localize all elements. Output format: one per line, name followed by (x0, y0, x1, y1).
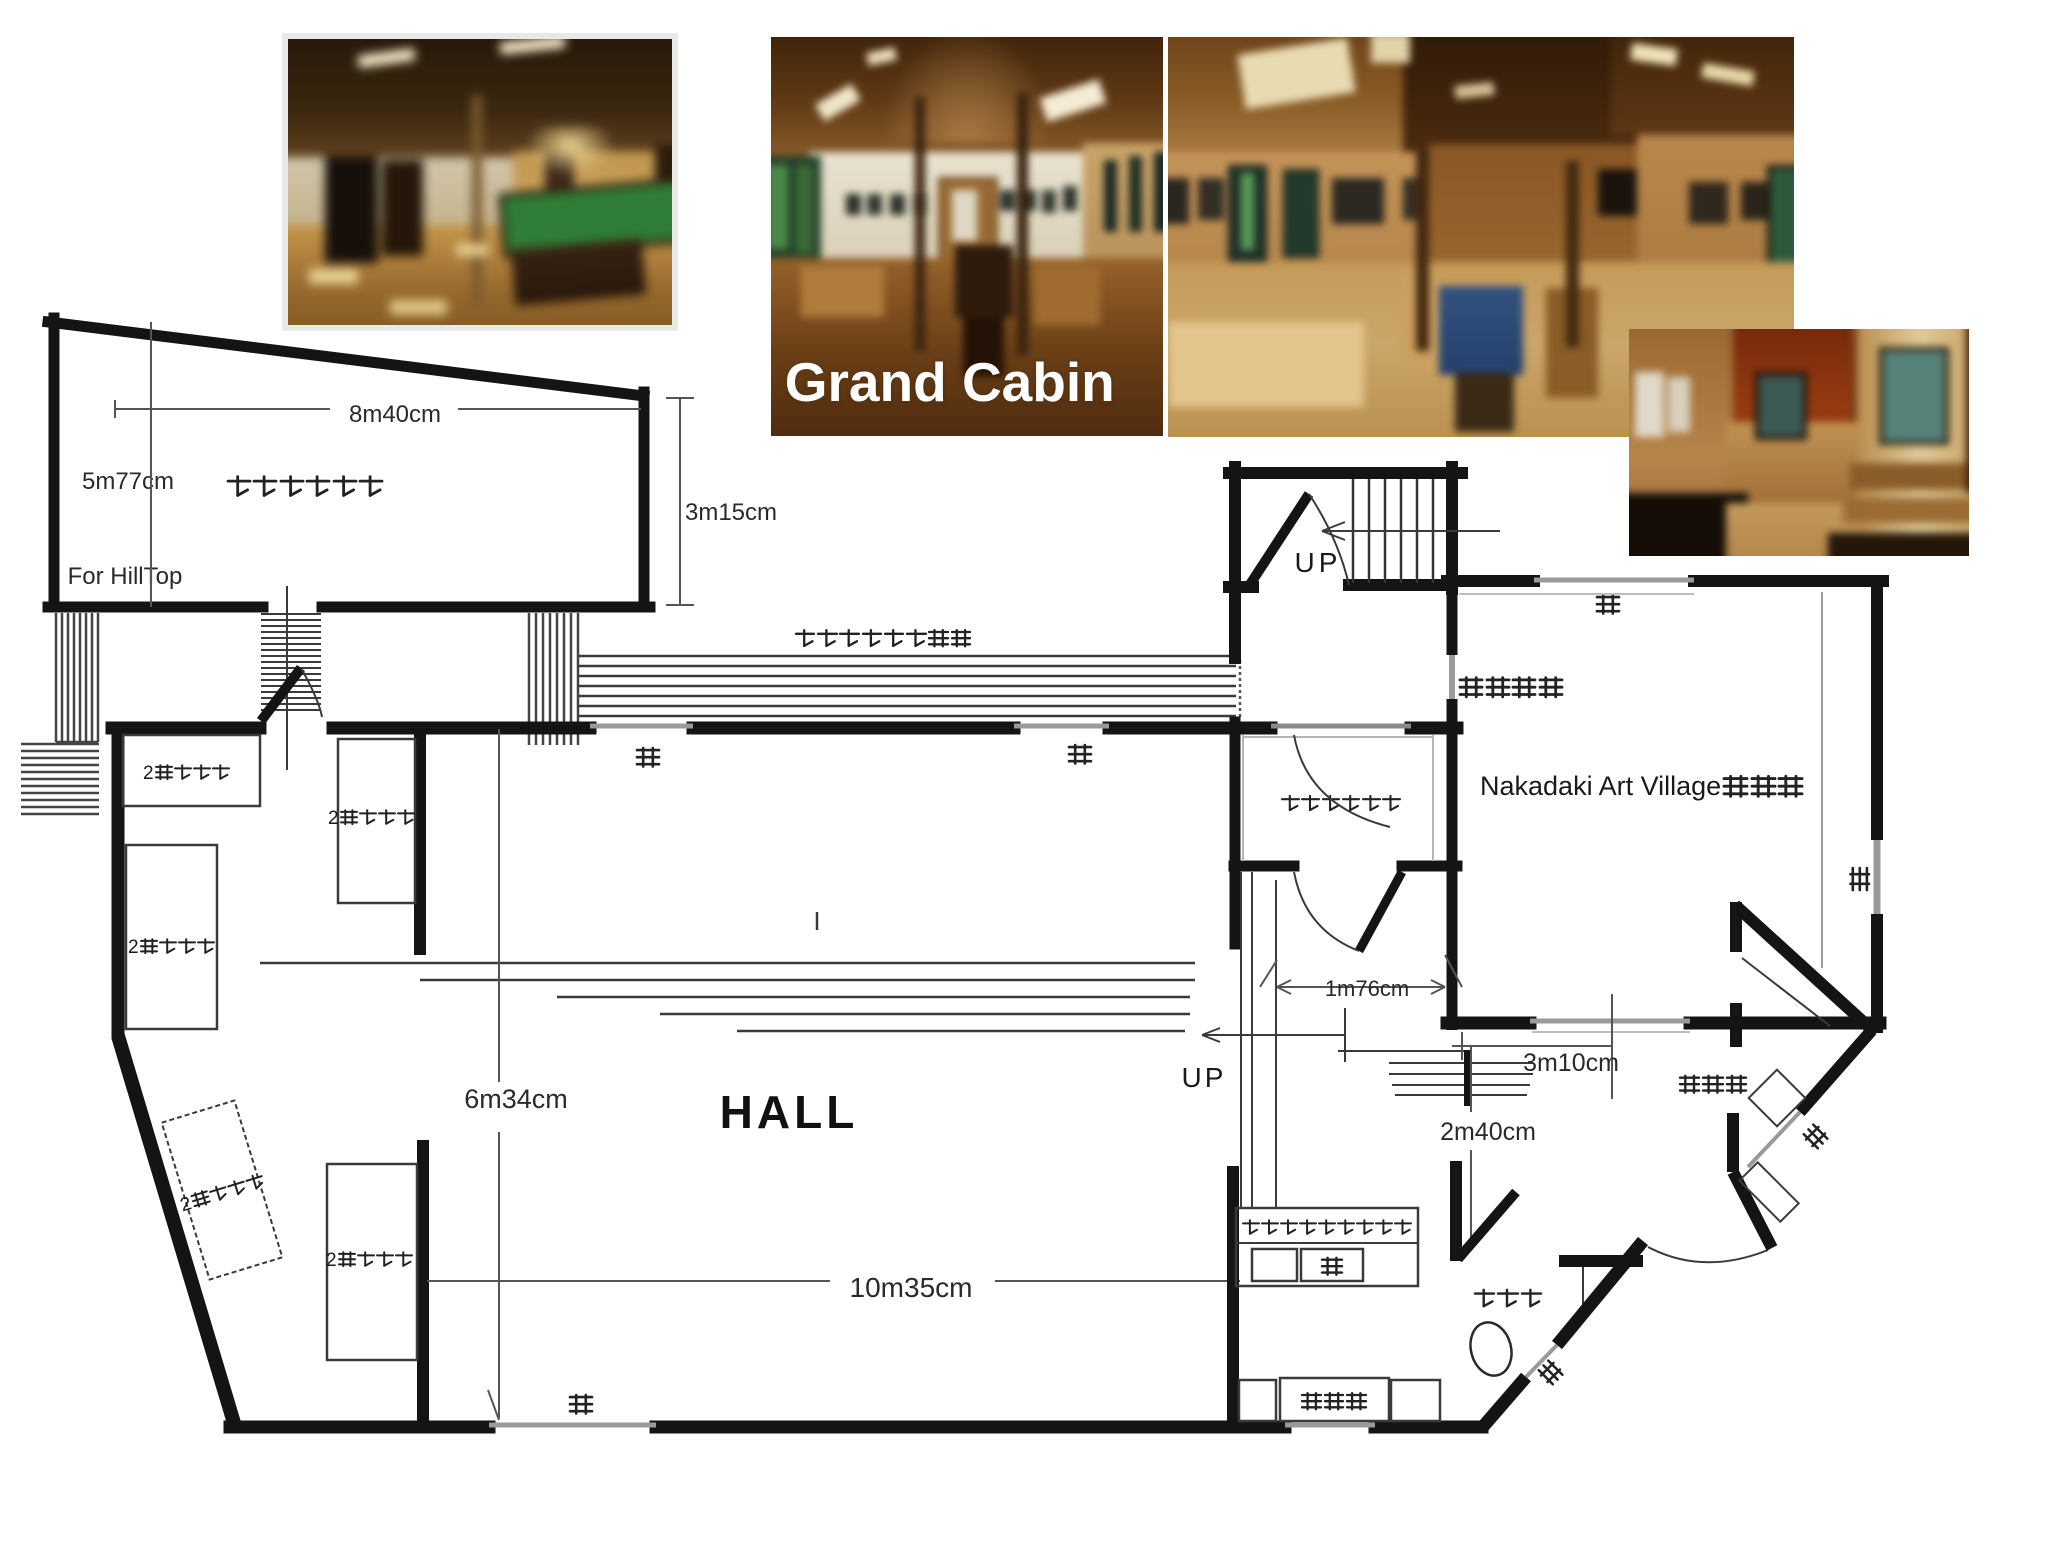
svg-text:2: 2 (143, 763, 154, 784)
svg-text:HALL: HALL (720, 1086, 859, 1138)
svg-text:UP: UP (1295, 547, 1342, 578)
svg-text:Nakadaki Art Village: Nakadaki Art Village (1480, 771, 1721, 801)
svg-text:2: 2 (326, 1250, 337, 1271)
svg-text:2m40cm: 2m40cm (1440, 1118, 1536, 1146)
svg-text:For HillTop: For HillTop (68, 563, 183, 590)
svg-text:1m76cm: 1m76cm (1325, 976, 1409, 1001)
svg-text:UP: UP (1182, 1062, 1227, 1093)
svg-text:3m15cm: 3m15cm (685, 499, 777, 526)
svg-text:10m35cm: 10m35cm (850, 1272, 973, 1303)
svg-text:8m40cm: 8m40cm (349, 401, 441, 428)
svg-text:5m77cm: 5m77cm (82, 468, 174, 495)
svg-text:2: 2 (328, 808, 339, 829)
svg-text:3m10cm: 3m10cm (1523, 1049, 1619, 1077)
svg-text:6m34cm: 6m34cm (464, 1084, 568, 1114)
svg-text:2: 2 (128, 937, 139, 958)
